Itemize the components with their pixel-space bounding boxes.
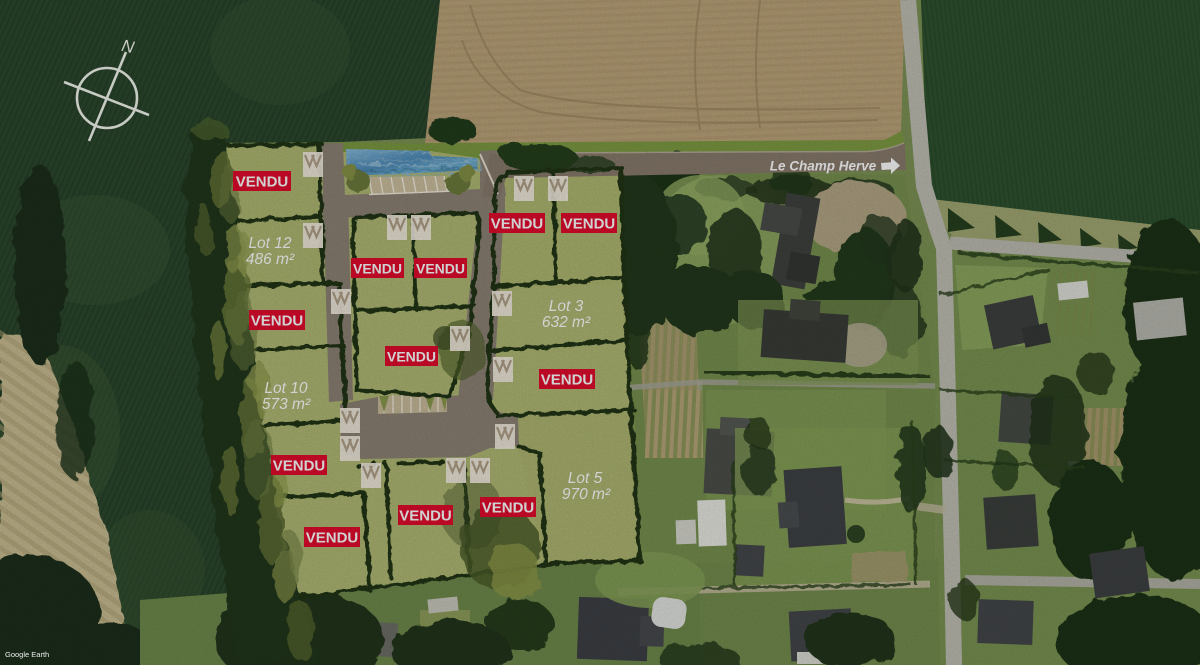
- svg-text:Google Earth: Google Earth: [5, 650, 49, 659]
